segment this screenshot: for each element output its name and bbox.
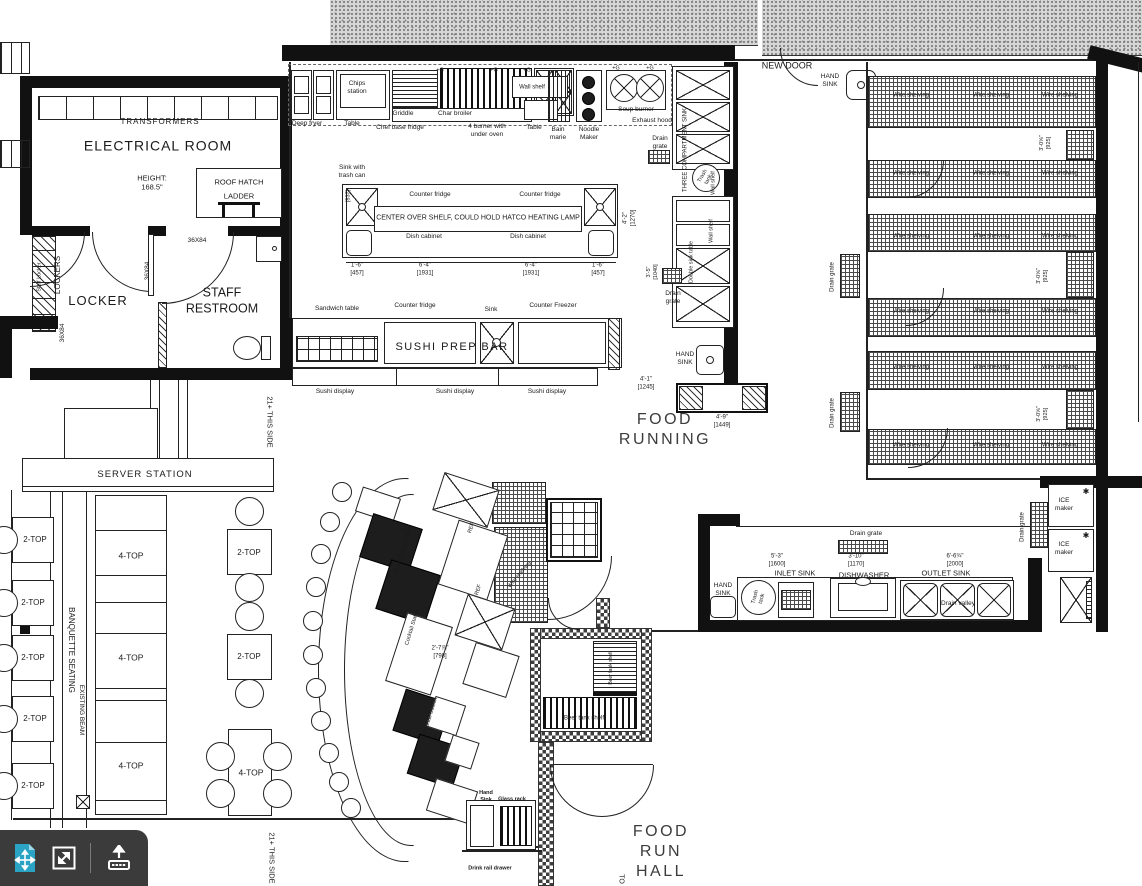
locker-room-label: LOCKER [68, 293, 127, 309]
plan-label: 1'-6" [457] [591, 263, 604, 278]
plan-label: Wire shelving [893, 233, 929, 241]
plan-label: Cocktail Station [404, 608, 422, 647]
plan-label: Hand Sink [479, 790, 493, 804]
plan-label: Deep fryer [292, 120, 322, 128]
plan-label: 2-TOP [23, 535, 46, 545]
plan-label: LOCKERS [53, 256, 63, 294]
plan-label: LADDER [224, 191, 254, 200]
plan-label: 4'-9" [1449] [714, 415, 731, 430]
plan-label: 4-TOP [119, 653, 144, 664]
plan-label: Wire shelving [973, 92, 1009, 100]
floor-plan-viewer: TRANSFORMERSELECTRICAL ROOMHEIGHT: 168.5… [0, 0, 1142, 886]
plan-label: Chips station [347, 80, 366, 96]
plan-label: Dish cabinet [510, 233, 546, 241]
plan-label: HAND SINK [676, 351, 694, 367]
plan-label: 3'-10" [1170] [848, 554, 864, 569]
plan-label: 4 burner with under oven [468, 123, 506, 139]
plan-label: +G [490, 68, 498, 75]
plan-label: Double sink table [689, 241, 696, 283]
plan-label: 6'-4" [1931] [417, 263, 434, 278]
plan-label: [837] [346, 190, 353, 202]
plan-label: Wall shelf [519, 84, 545, 92]
transformers-label: TRANSFORMERS [120, 117, 199, 127]
plan-label: 1'-6" [457] [350, 263, 363, 278]
server-station-label: SERVER STATION [97, 469, 192, 481]
plan-label: Sushi display [436, 388, 474, 396]
plan-label: 2'-7⅞" [798] [432, 646, 449, 661]
plan-label: 4'-2" [1270] [623, 210, 638, 227]
plan-label: 4-TOP [119, 551, 144, 562]
plan-label: HAND SINK [821, 73, 839, 89]
plan-label: Sink with trash can [339, 164, 366, 180]
plan-label: Wire shelving [973, 308, 1009, 316]
plan-label: Sushi display [316, 388, 354, 396]
plan-label: Sushi display [528, 388, 566, 396]
plan-label: 2-TOP [21, 781, 44, 791]
plan-label: Bain marie [550, 126, 566, 142]
plan-label: Beer tank shelf [608, 651, 614, 684]
plan-label: Drain grate [665, 290, 681, 306]
plan-label: 5'-3" [1600] [769, 554, 786, 569]
plan-label: 2-TOP [23, 714, 46, 724]
plan-label: +G [436, 68, 444, 75]
plan-label: 2-TOP [21, 653, 44, 663]
plan-label: HEIGHT: 168.5" [137, 174, 167, 193]
upload-icon[interactable] [105, 845, 133, 871]
plan-label: +G [523, 68, 531, 75]
plan-label: Drain valley [941, 600, 975, 608]
plan-label: TO [616, 874, 625, 884]
plan-label: +G [646, 66, 654, 73]
toolbar-divider [90, 843, 91, 873]
plan-label: Counter fridge [394, 302, 435, 310]
plan-label: Table [526, 124, 542, 132]
plan-label: Drain grate [829, 398, 837, 428]
plan-label: Drain grate [652, 135, 668, 151]
plan-label: 36X84 [59, 324, 67, 343]
plan-label: Table [344, 120, 360, 128]
plan-label: Drink rail drawer [468, 866, 511, 873]
plan-label: 3'-0⅝" [925] [1036, 268, 1050, 284]
plan-label: ICE maker [1055, 541, 1073, 557]
plan-labels-layer: TRANSFORMERSELECTRICAL ROOMHEIGHT: 168.5… [0, 0, 1142, 886]
plan-label: ICE maker [1055, 497, 1073, 513]
plan-label: 4-TOP [119, 761, 144, 772]
plan-label: Wire shelving [1042, 92, 1078, 100]
plan-label: +G [612, 66, 620, 73]
plan-label: 2-TOP [237, 548, 260, 558]
plan-label: Soup burner [618, 106, 654, 114]
sushi-prep-bar-label: SUSHI PREP BAR [395, 341, 508, 355]
plan-label: Noodle Maker [579, 126, 600, 142]
fit-to-page-icon[interactable] [12, 843, 38, 873]
plan-label: Wire shelving [973, 364, 1009, 372]
plan-label: Wire shelving [1042, 308, 1078, 316]
plan-label: Staff Locker [37, 262, 44, 291]
plan-label: Wire shelving [973, 233, 1009, 241]
plan-label: ✱ [1083, 531, 1090, 541]
inlet-sink-label: INLET SINK [775, 568, 816, 577]
plan-label: Wire shelving [973, 442, 1009, 450]
roof-hatch-label: ROOF HATCH [214, 177, 263, 186]
plan-canvas[interactable]: TRANSFORMERSELECTRICAL ROOMHEIGHT: 168.5… [0, 0, 1142, 886]
plan-label: Wire shelving [1042, 233, 1078, 241]
plan-label: 4'-1" [1245] [638, 377, 655, 392]
plan-label: Drain grate [850, 530, 882, 538]
plan-label: Drain grate [829, 262, 837, 292]
plan-label: Counter fridge [519, 191, 560, 199]
plan-label: Char broiler [438, 110, 472, 118]
plan-label: Drain grate [1019, 512, 1027, 542]
plan-label: Wire shelving [893, 442, 929, 450]
plan-label: Wire shelving [1042, 364, 1078, 372]
plan-label: 2-TOP [21, 598, 44, 608]
plan-label: 3'-0⅝" [925] [1036, 406, 1050, 422]
plan-label: HAND SINK [714, 582, 732, 598]
plan-label: Counter fridge [409, 191, 450, 199]
plan-label: Wire shelving [893, 364, 929, 372]
plan-label: THREE COMPARTMENT SINK [682, 108, 690, 192]
plan-label: Trash tank [751, 590, 768, 607]
plan-label: 3'-0⅝" [925] [1039, 135, 1053, 151]
plan-label: Wire shelving [1042, 442, 1078, 450]
plan-label: Chef base fridge [376, 124, 424, 132]
plan-label: REF [467, 522, 477, 535]
plan-label: 36X84 [188, 237, 207, 245]
plan-label: Glass rack [498, 797, 526, 804]
plan-label: 36X84 [144, 262, 152, 281]
plan-label: Wire shelving [893, 170, 929, 178]
plan-label: 2-TOP [237, 652, 260, 662]
plan-label: Cocktail Station [422, 697, 440, 736]
plan-label: Sushi display fridge [394, 526, 415, 574]
plan-label: 4-TOP [239, 768, 264, 779]
plan-label: 6'-4" [1931] [523, 263, 540, 278]
plan-label: 21+ THIS SIDE [267, 832, 276, 883]
plan-label: 6'-6¾" [2000] [947, 554, 964, 569]
plan-label: EXISTING BEAM [77, 685, 85, 736]
plan-label: Wall shelf [709, 219, 716, 243]
plan-label: Wire shelving [507, 560, 533, 590]
plan-label: Wire shelving [1042, 170, 1078, 178]
plan-label: ✱ [1083, 487, 1090, 497]
food-running-label: FOOD RUNNING [619, 410, 711, 450]
plan-label: Wire shelving [973, 170, 1009, 178]
plan-label: Exhaust hood [632, 117, 672, 125]
plan-label: 21+ THIS SIDE [265, 396, 274, 447]
toolbar [0, 830, 148, 886]
plan-label: 3'-5" [1040] [646, 264, 660, 279]
plan-label: Sink [485, 306, 498, 314]
dishwasher-label: DISHWASHER [839, 570, 890, 579]
plan-label: Wire shelving [893, 92, 929, 100]
electrical-room-label: ELECTRICAL ROOM [84, 137, 232, 155]
plan-label: Griddle [393, 110, 414, 118]
new-door-label: NEW DOOR [762, 60, 813, 71]
plan-label: Wire shelving [893, 308, 929, 316]
food-run-hall-label: FOOD RUN HALL [633, 822, 689, 882]
plan-label: Beer tank shelf [564, 715, 604, 723]
staff-restroom-label: STAFF RESTROOM [186, 285, 258, 316]
banquette-seating-label: BANQUETTE SEATING [66, 607, 76, 693]
plan-label: CENTER OVER SHELF, COULD HOLD HATCO HEAT… [376, 215, 580, 224]
plan-label: Sandwich table [315, 305, 359, 313]
plan-label: REF [474, 584, 484, 597]
plan-label: Dish cabinet [406, 233, 442, 241]
outlet-sink-label: OUTLET SINK [921, 568, 970, 577]
fullscreen-icon[interactable] [52, 846, 76, 870]
plan-label: Counter Freezer [529, 302, 576, 310]
